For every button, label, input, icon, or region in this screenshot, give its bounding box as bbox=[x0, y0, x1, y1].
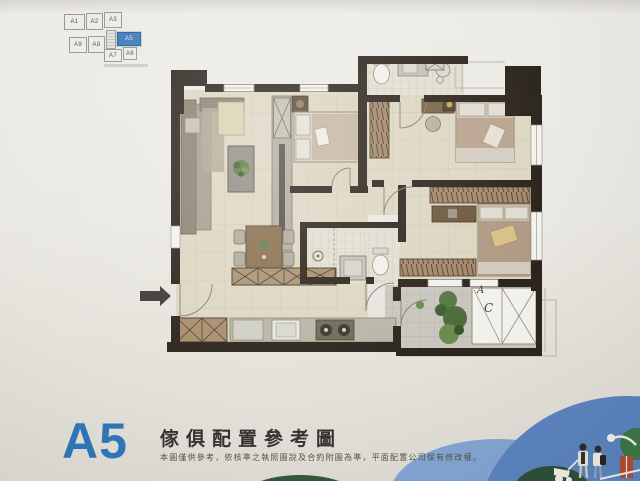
keyplan-unit-a9: A9 bbox=[69, 37, 87, 53]
disclaimer-text: 本圖僅供參考，依核準之執照圖說及合約附圖為準，平面配置公司保有修改權。 bbox=[160, 452, 482, 463]
entry-arrow bbox=[140, 286, 171, 306]
keyplan: A1 A2 A3 A9 A8 A5 A7 A6 bbox=[0, 0, 180, 80]
keyplan-unit-a7: A7 bbox=[104, 49, 122, 62]
keyplan-unit-a3: A3 bbox=[104, 12, 122, 28]
ac-area-letter-c: C bbox=[484, 301, 493, 315]
ac-equipment-area bbox=[472, 288, 536, 344]
page-title: 傢俱配置參考圖 bbox=[160, 424, 342, 451]
entry-shoe-cabinet bbox=[177, 318, 227, 342]
keyplan-unit-a1: A1 bbox=[64, 14, 85, 30]
keyplan-unit-a6: A6 bbox=[123, 47, 137, 60]
ac-area-letter-a: A bbox=[477, 285, 484, 296]
keyplan-unit-a2: A2 bbox=[86, 13, 103, 30]
coffee-table-with-plant bbox=[228, 146, 254, 192]
keyplan-unit-a5-highlighted: A5 bbox=[117, 32, 141, 46]
keyplan-unit-a8: A8 bbox=[88, 36, 105, 53]
kitchen-counter bbox=[230, 318, 396, 342]
keyplan-stair-core bbox=[106, 30, 116, 49]
title-block: A5 傢俱配置參考圖 本圖僅供參考，依核準之執照圖說及合約附圖為準，平面配置公司… bbox=[0, 410, 640, 481]
keyplan-caption-smudge bbox=[104, 64, 148, 67]
unit-code: A5 bbox=[62, 416, 128, 466]
brochure-page-photo: A1 A2 A3 A9 A8 A5 A7 A6 A C A5 傢俱配置參考圖 本… bbox=[0, 0, 640, 481]
